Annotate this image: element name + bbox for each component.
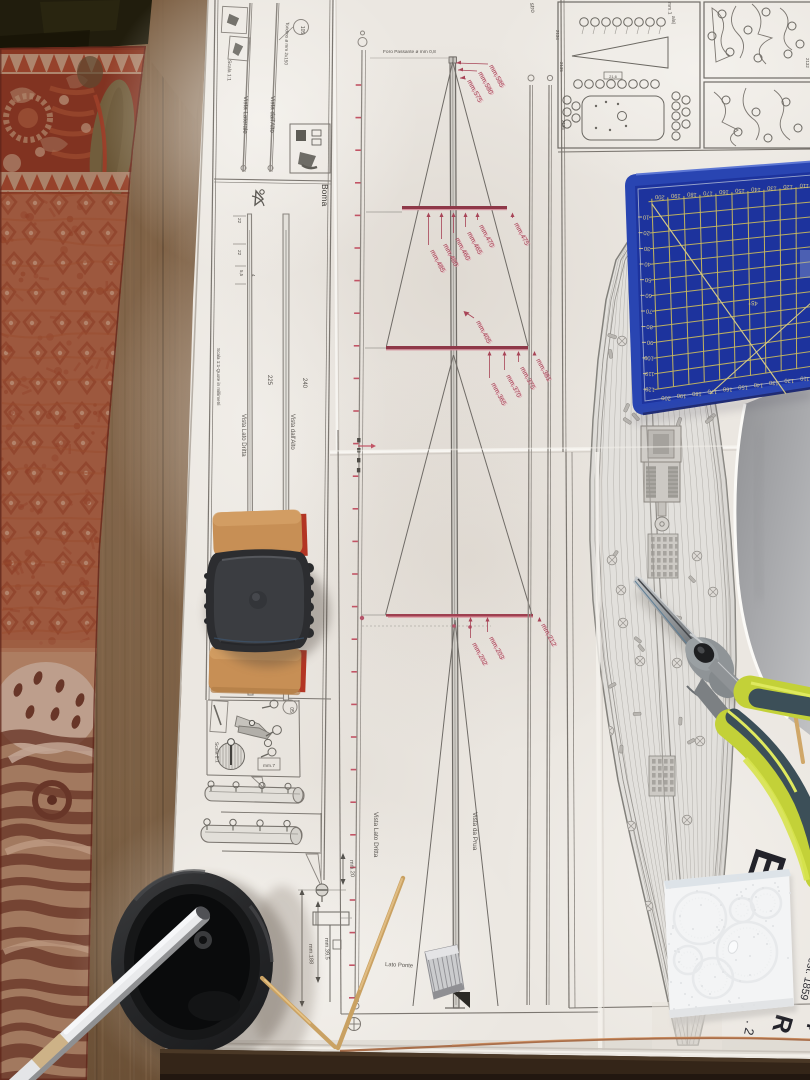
svg-text:22: 22	[236, 218, 242, 224]
svg-text:120: 120	[784, 377, 794, 384]
svg-text:200: 200	[655, 193, 665, 200]
svg-text:Vista da Prua: Vista da Prua	[471, 812, 478, 851]
svg-text:110: 110	[645, 370, 655, 377]
svg-text:2135: 2135	[559, 62, 564, 72]
svg-text:140: 140	[754, 381, 764, 388]
svg-text:mm.39,5: mm.39,5	[323, 938, 330, 960]
svg-text:150: 150	[738, 383, 748, 390]
svg-text:22: 22	[236, 250, 242, 256]
svg-text:50: 50	[645, 276, 652, 282]
svg-text:190: 190	[671, 192, 681, 199]
svg-text:170: 170	[707, 388, 717, 395]
svg-text:225: 225	[266, 375, 272, 386]
svg-text:Scala 1:1-Quote in millimetri: Scala 1:1-Quote in millimetri	[216, 348, 221, 405]
svg-text:180: 180	[692, 390, 702, 397]
svg-text:20: 20	[643, 229, 650, 235]
svg-text:2132: 2132	[805, 58, 810, 68]
svg-text:140: 140	[751, 185, 761, 192]
svg-text:240: 240	[301, 378, 307, 389]
svg-text:mm.7: mm.7	[263, 763, 275, 769]
svg-text:Vista Lato Dritta: Vista Lato Dritta	[240, 414, 246, 457]
svg-text:mm.1: mm.1	[666, 2, 672, 15]
svg-text:120: 120	[783, 183, 793, 190]
svg-text:Vista Lato Dritta: Vista Lato Dritta	[372, 812, 379, 858]
svg-text:Vista Laterale: Vista Laterale	[241, 96, 249, 134]
svg-text:160: 160	[723, 385, 733, 392]
svg-text:. 2: . 2	[741, 1019, 759, 1036]
svg-text:180: 180	[687, 190, 697, 197]
svg-text:ala): ala)	[670, 16, 676, 25]
svg-text:80: 80	[646, 323, 653, 329]
svg-text:21,6: 21,6	[609, 74, 618, 79]
svg-text:70: 70	[646, 307, 653, 313]
svg-text:110: 110	[799, 182, 809, 189]
svg-text:100: 100	[644, 354, 654, 361]
svg-text:10: 10	[643, 213, 650, 219]
svg-text:Scala 2:1: Scala 2:1	[213, 742, 220, 763]
svg-text:40: 40	[644, 260, 651, 266]
svg-text:2136: 2136	[561, 120, 566, 130]
svg-text:160: 160	[719, 188, 729, 195]
svg-text:130: 130	[769, 379, 779, 386]
svg-text:5,5: 5,5	[239, 270, 244, 277]
svg-text:05: 05	[288, 707, 294, 713]
svg-text:150: 150	[735, 187, 745, 194]
svg-text:120: 120	[645, 385, 655, 392]
svg-text:90: 90	[647, 339, 654, 345]
svg-text:Scala 1:1: Scala 1:1	[226, 60, 232, 81]
svg-text:60: 60	[645, 292, 652, 298]
svg-text:200: 200	[661, 394, 671, 401]
svg-text:Foro Passante ø mm 0,8: Foro Passante ø mm 0,8	[383, 49, 436, 55]
svg-text:Boma: Boma	[320, 184, 330, 206]
svg-text:Vista dall'Alto: Vista dall'Alto	[289, 414, 295, 450]
svg-text:mm.20: mm.20	[348, 860, 355, 877]
svg-text:105: 105	[299, 26, 305, 35]
svg-text:110: 110	[800, 375, 810, 382]
svg-text:170: 170	[703, 189, 713, 196]
svg-text:30: 30	[644, 245, 651, 251]
svg-text:Vista dall'Alto: Vista dall'Alto	[268, 96, 276, 134]
svg-text:130: 130	[767, 184, 777, 191]
svg-text:190: 190	[677, 392, 687, 399]
svg-text:2134: 2134	[555, 30, 560, 40]
